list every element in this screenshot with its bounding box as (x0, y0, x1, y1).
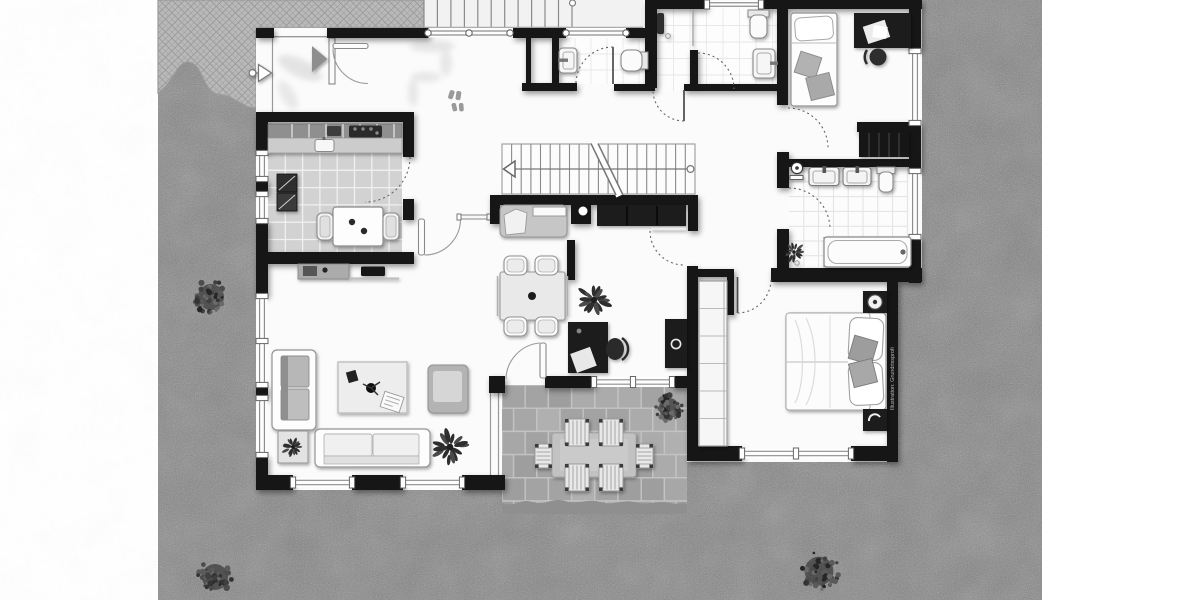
svg-text:Illustration: Grundrissprofi: Illustration: Grundrissprofi (890, 347, 896, 410)
